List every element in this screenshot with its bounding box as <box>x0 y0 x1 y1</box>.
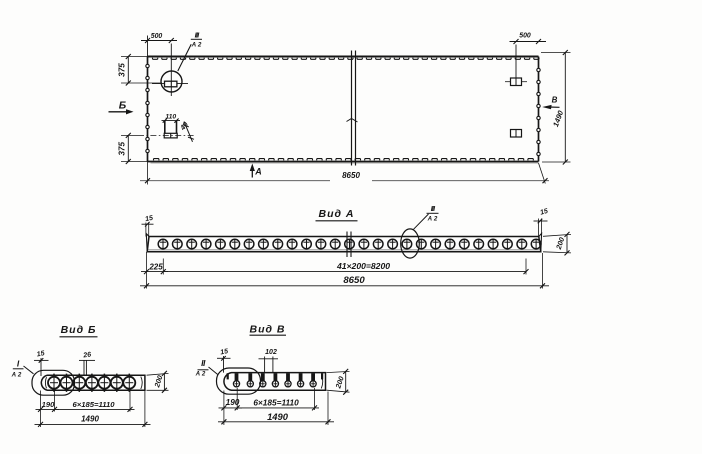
svg-text:500: 500 <box>151 33 163 40</box>
svg-text:190: 190 <box>42 400 55 409</box>
svg-text:1490: 1490 <box>267 411 289 422</box>
svg-text:А 2: А 2 <box>427 216 438 223</box>
svg-text:А: А <box>254 167 262 177</box>
svg-text:В: В <box>552 96 558 105</box>
svg-text:А 2: А 2 <box>11 372 22 379</box>
svg-text:26: 26 <box>82 351 92 359</box>
svg-text:Вид В: Вид В <box>250 324 286 336</box>
svg-text:500: 500 <box>519 33 531 40</box>
svg-text:А 2: А 2 <box>191 42 202 49</box>
svg-text:110: 110 <box>165 113 176 120</box>
svg-text:8650: 8650 <box>343 275 365 286</box>
svg-text:15: 15 <box>220 348 229 356</box>
svg-text:375: 375 <box>118 142 127 156</box>
svg-text:15: 15 <box>36 350 45 358</box>
svg-text:Б: Б <box>119 100 127 112</box>
svg-text:1490: 1490 <box>81 414 99 423</box>
svg-text:102: 102 <box>265 349 277 356</box>
svg-text:А 2: А 2 <box>195 371 206 378</box>
svg-text:6×185=1110: 6×185=1110 <box>253 397 299 407</box>
svg-text:8650: 8650 <box>342 171 360 180</box>
svg-text:Вид Б: Вид Б <box>61 324 97 336</box>
svg-text:Вид А: Вид А <box>319 208 355 220</box>
svg-text:190: 190 <box>226 397 240 407</box>
svg-text:6×185=1110: 6×185=1110 <box>72 400 115 409</box>
svg-text:225: 225 <box>148 262 163 271</box>
svg-text:41×200=8200: 41×200=8200 <box>336 261 390 271</box>
svg-text:375: 375 <box>118 63 127 77</box>
